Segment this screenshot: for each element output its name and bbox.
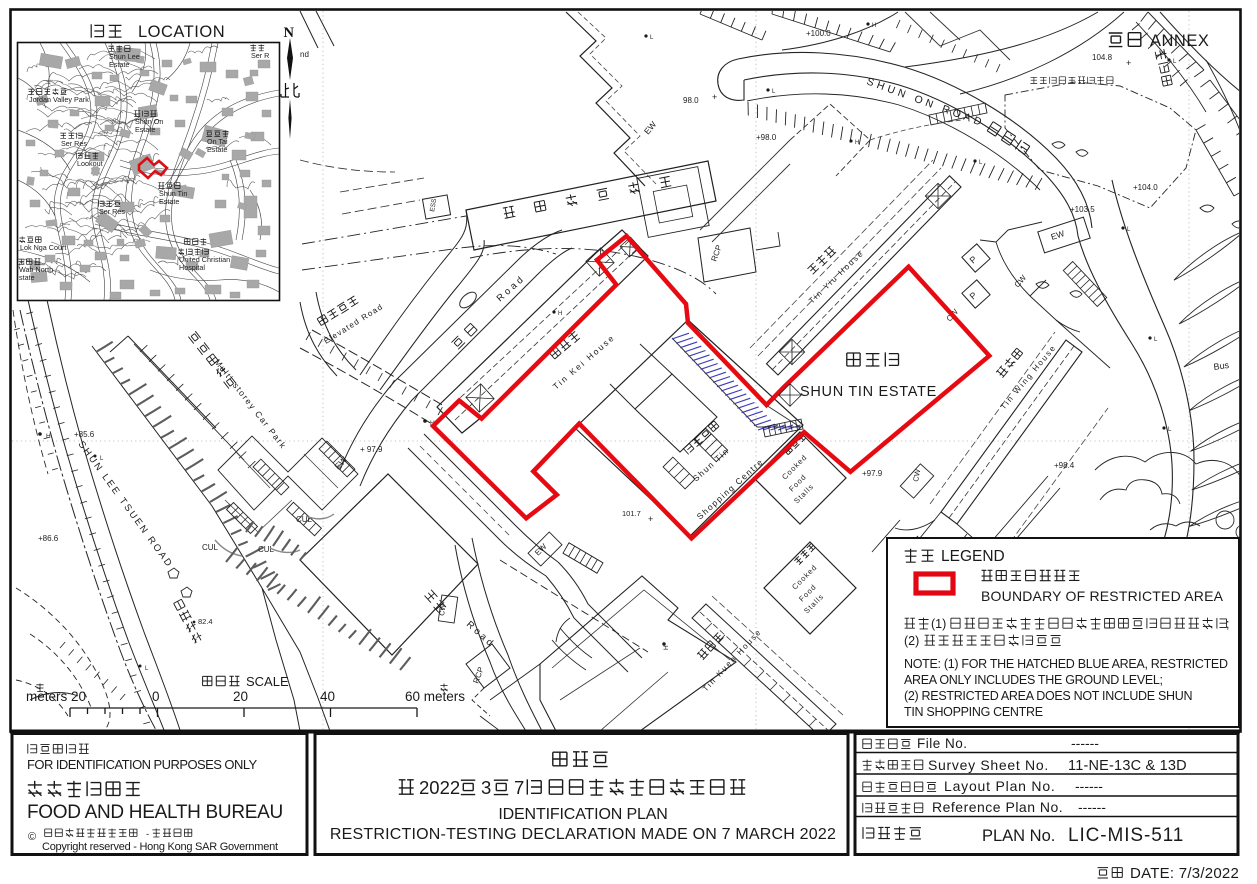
svg-text:98.0: 98.0 bbox=[683, 96, 699, 105]
svg-text:H: H bbox=[558, 311, 562, 317]
svg-text:TIN SHOPPING CENTRE: TIN SHOPPING CENTRE bbox=[904, 705, 1043, 719]
svg-text:PLAN No.: PLAN No. bbox=[982, 827, 1055, 845]
svg-text:+ 97.9: + 97.9 bbox=[360, 445, 383, 454]
svg-text:Ser Res: Ser Res bbox=[99, 207, 125, 216]
svg-text:nd: nd bbox=[300, 50, 309, 59]
svg-text:Layout Plan No.: Layout Plan No. bbox=[944, 778, 1056, 794]
svg-text:------: ------ bbox=[1071, 735, 1099, 751]
svg-text:+104.0: +104.0 bbox=[1133, 183, 1158, 192]
svg-text:DATE: 7/3/2022: DATE: 7/3/2022 bbox=[1130, 865, 1239, 882]
svg-text:+: + bbox=[648, 514, 653, 524]
svg-text:File No.: File No. bbox=[917, 736, 968, 751]
svg-text:+86.6: +86.6 bbox=[38, 534, 59, 543]
svg-text:N: N bbox=[284, 25, 295, 41]
svg-text:Estate: Estate bbox=[109, 60, 129, 69]
svg-text:+: + bbox=[1126, 58, 1131, 68]
svg-text:(2): (2) bbox=[904, 634, 919, 648]
svg-text:+85.6: +85.6 bbox=[74, 430, 95, 439]
svg-text:+98.4: +98.4 bbox=[1054, 461, 1075, 470]
svg-text:+98.0: +98.0 bbox=[756, 133, 777, 142]
svg-text:Copyright reserved - Hong Kong: Copyright reserved - Hong Kong SAR Gover… bbox=[42, 841, 278, 853]
svg-text:CUL: CUL bbox=[296, 515, 313, 524]
svg-text:AREA ONLY INCLUDES THE GROUND: AREA ONLY INCLUDES THE GROUND LEVEL; bbox=[904, 673, 1163, 687]
svg-text:NOTE: (1) FOR THE HATCHED BLUE: NOTE: (1) FOR THE HATCHED BLUE AREA, RES… bbox=[904, 657, 1228, 671]
svg-text:40: 40 bbox=[320, 689, 335, 704]
svg-text:Estate: Estate bbox=[207, 145, 227, 154]
svg-text:©: © bbox=[28, 831, 36, 843]
svg-text:Ser Res: Ser Res bbox=[61, 139, 87, 148]
svg-text:Lookout: Lookout bbox=[77, 159, 103, 168]
svg-text:Jordan Valley Park: Jordan Valley Park bbox=[29, 95, 89, 104]
svg-text:LOCATION: LOCATION bbox=[138, 23, 225, 41]
svg-text:3: 3 bbox=[481, 777, 491, 798]
svg-text:H: H bbox=[872, 23, 876, 29]
svg-text:;: ; bbox=[1226, 617, 1229, 631]
svg-text:11-NE-13C & 13D: 11-NE-13C & 13D bbox=[1068, 758, 1187, 774]
svg-text:ANNEX: ANNEX bbox=[1150, 32, 1209, 50]
svg-text:------: ------ bbox=[1078, 799, 1106, 815]
svg-text:104.8: 104.8 bbox=[1092, 53, 1113, 62]
svg-text:Ser R: Ser R bbox=[251, 51, 269, 60]
svg-text:Hospital: Hospital bbox=[179, 263, 205, 272]
svg-text:Estate: Estate bbox=[135, 125, 155, 134]
svg-text:(1): (1) bbox=[931, 617, 946, 631]
svg-text:LIC-MIS-511: LIC-MIS-511 bbox=[1068, 825, 1184, 846]
svg-text:RESTRICTION-TESTING DECLARATIO: RESTRICTION-TESTING DECLARATION MADE ON … bbox=[330, 826, 836, 843]
svg-text:2022: 2022 bbox=[419, 777, 460, 798]
svg-text:FOR IDENTIFICATION PURPOSES ON: FOR IDENTIFICATION PURPOSES ONLY bbox=[27, 757, 258, 772]
svg-text:meters 20: meters 20 bbox=[26, 689, 86, 704]
svg-text:LEGEND: LEGEND bbox=[941, 548, 1005, 565]
svg-text:60 meters: 60 meters bbox=[405, 689, 465, 704]
svg-text:Estate: Estate bbox=[159, 197, 179, 206]
svg-text:0: 0 bbox=[152, 689, 160, 704]
svg-text:FOOD AND HEALTH BUREAU: FOOD AND HEALTH BUREAU bbox=[27, 802, 283, 823]
svg-text:H: H bbox=[855, 140, 859, 146]
svg-text:BOUNDARY OF RESTRICTED AREA: BOUNDARY OF RESTRICTED AREA bbox=[981, 588, 1224, 604]
svg-text:7: 7 bbox=[514, 777, 524, 798]
svg-text:+: + bbox=[712, 92, 717, 102]
svg-text:Lok Nga Court: Lok Nga Court bbox=[20, 243, 66, 252]
svg-text:20: 20 bbox=[233, 689, 248, 704]
svg-text:+97.9: +97.9 bbox=[862, 469, 883, 478]
svg-text:SHUN TIN ESTATE: SHUN TIN ESTATE bbox=[800, 384, 937, 400]
svg-text:Reference Plan No.: Reference Plan No. bbox=[932, 799, 1063, 815]
svg-text:+100.0: +100.0 bbox=[806, 29, 831, 38]
svg-text:(2) RESTRICTED AREA DOES NOT I: (2) RESTRICTED AREA DOES NOT INCLUDE SHU… bbox=[904, 689, 1192, 703]
svg-text:82.4: 82.4 bbox=[198, 617, 213, 626]
svg-text:IDENTIFICATION PLAN: IDENTIFICATION PLAN bbox=[498, 806, 667, 823]
svg-text:state: state bbox=[19, 273, 35, 282]
svg-text:H: H bbox=[46, 433, 51, 440]
svg-text:------: ------ bbox=[1075, 778, 1103, 794]
svg-text:H: H bbox=[663, 645, 670, 650]
svg-text:101.7: 101.7 bbox=[622, 509, 641, 518]
svg-text:+103.5: +103.5 bbox=[1070, 205, 1095, 214]
svg-text:Survey Sheet No.: Survey Sheet No. bbox=[928, 757, 1049, 773]
svg-text:-: - bbox=[146, 829, 149, 840]
svg-text:CUL: CUL bbox=[202, 543, 219, 552]
svg-text:SCALE: SCALE bbox=[246, 674, 289, 689]
